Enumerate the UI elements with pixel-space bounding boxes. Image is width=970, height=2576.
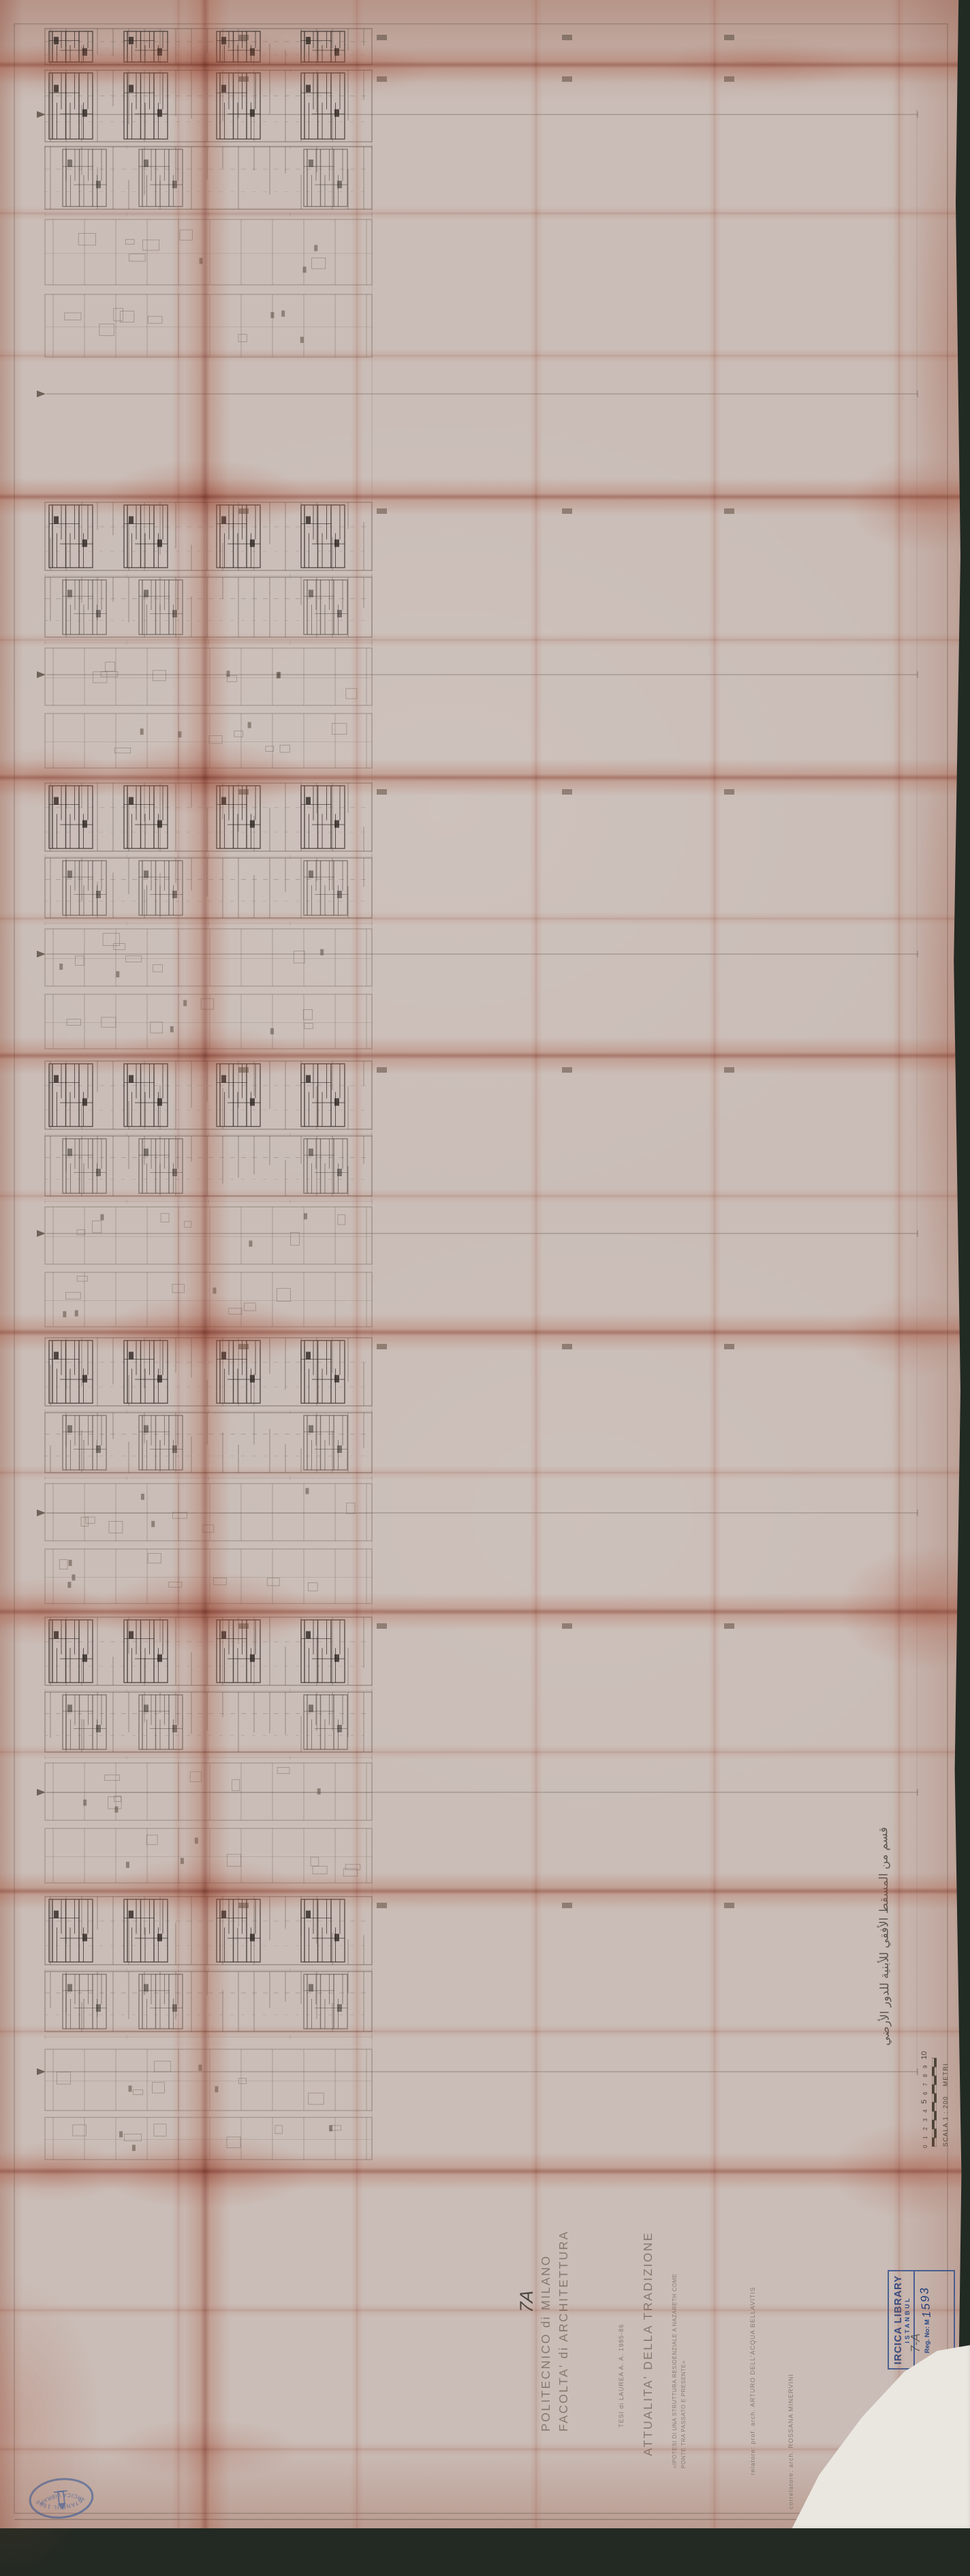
title-block-layer: 7A POLITECNICO di MILANO FACOLTA' di ARC… xyxy=(0,0,970,2528)
thesis-subtitle: «IPOTESI DI UNA STRUTTURA RESIDENZIALE A… xyxy=(670,2273,688,2468)
scale-tick: 2 xyxy=(922,2128,928,2130)
stamp-reg-prefix: M xyxy=(924,2319,931,2325)
stamp-reg-label: Reg. No: xyxy=(924,2327,931,2353)
scale-bar-ticks: 012345678910 xyxy=(921,2038,928,2147)
institution-line2: FACOLTA' di ARCHITETTURA xyxy=(554,2230,572,2432)
institution-line1: POLITECNICO di MILANO xyxy=(537,2230,554,2432)
thesis-line: TESI di LAUREA A. A. 1985-86 xyxy=(616,2324,626,2427)
scanned-sheet: { "titleblock": { "institution_line1": "… xyxy=(0,0,970,2528)
handwritten-sheet-number: 7A xyxy=(516,2289,537,2314)
scale-tick: 3 xyxy=(922,2119,928,2121)
stamp-library-name: IRCICA LIBRARY xyxy=(893,2273,904,2367)
stamp-reg-row: Reg. No: M 1593 xyxy=(915,2271,933,2368)
scale-tick: 9 xyxy=(922,2066,928,2068)
scale-tick: 6 xyxy=(922,2092,928,2095)
scale-bar: 012345678910 SCALA 1 : 200METRI xyxy=(921,2038,948,2147)
scale-tick: 0 xyxy=(922,2145,928,2148)
correlatore-line: correlatore: arch. ROSSANA MINERVINI xyxy=(786,2374,796,2509)
subtitle-line2: PONTE TRA PASSATO E PRESENTE» xyxy=(679,2273,688,2468)
stamp-city: ISTANBUL xyxy=(904,2273,911,2367)
scale-tick: 10 xyxy=(920,2051,928,2059)
scale-tick: 5 xyxy=(920,2100,928,2104)
institution-title: POLITECNICO di MILANO FACOLTA' di ARCHIT… xyxy=(537,2230,572,2432)
arabic-handwritten-note: قسم من المسقط الأفقي للأبنية للدور الأرض… xyxy=(877,1827,892,2046)
stamp-reg-number-handwritten: 1593 xyxy=(918,2286,934,2318)
scale-bar-segments xyxy=(932,2057,937,2147)
scale-tick: 4 xyxy=(922,2110,928,2113)
scale-tick: 8 xyxy=(922,2074,928,2077)
scale-text: SCALA 1 : 200 xyxy=(942,2096,949,2147)
subtitle-line1: «IPOTESI DI UNA STRUTTURA RESIDENZIALE A… xyxy=(670,2273,679,2468)
oval-library-seal: ISTANBUL 1980 IRCICA LIBRARY xyxy=(25,2473,97,2524)
stamp-header: IRCICA LIBRARY ISTANBUL xyxy=(889,2271,915,2368)
scale-tick: 7 xyxy=(922,2083,928,2086)
scale-bar-label: SCALA 1 : 200METRI xyxy=(942,2038,949,2147)
thesis-title: ATTUALITA' DELLA TRADIZIONE xyxy=(639,2231,657,2456)
scale-tick: 1 xyxy=(922,2136,928,2139)
seal-ellipse xyxy=(28,2476,94,2520)
scale-unit: METRI xyxy=(942,2063,949,2086)
relatore-line: relatore: prof. arch. ARTURO DELL'ACQUA … xyxy=(748,2287,757,2475)
